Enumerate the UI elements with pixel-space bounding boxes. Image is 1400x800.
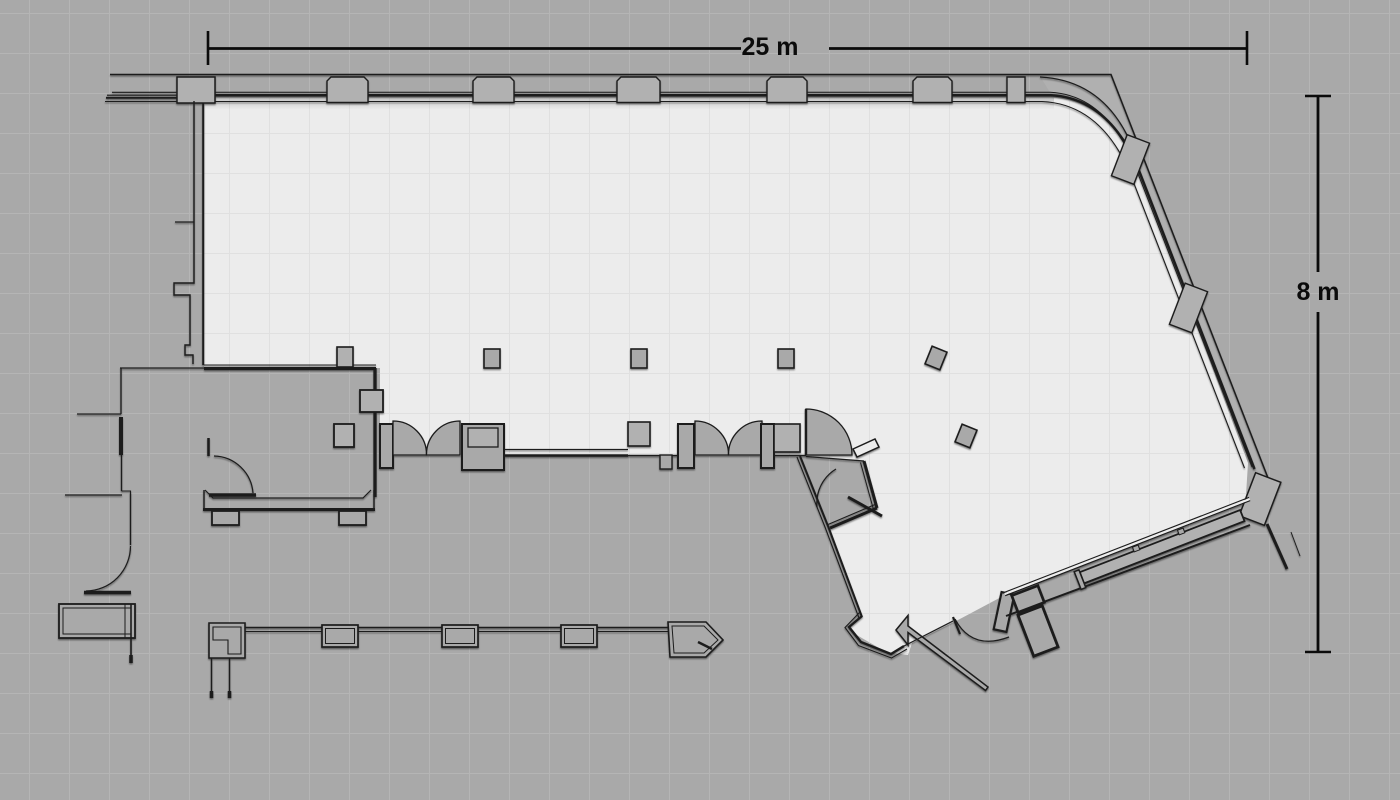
svg-text:8 m: 8 m (1296, 278, 1339, 306)
svg-text:25 m: 25 m (742, 33, 799, 61)
